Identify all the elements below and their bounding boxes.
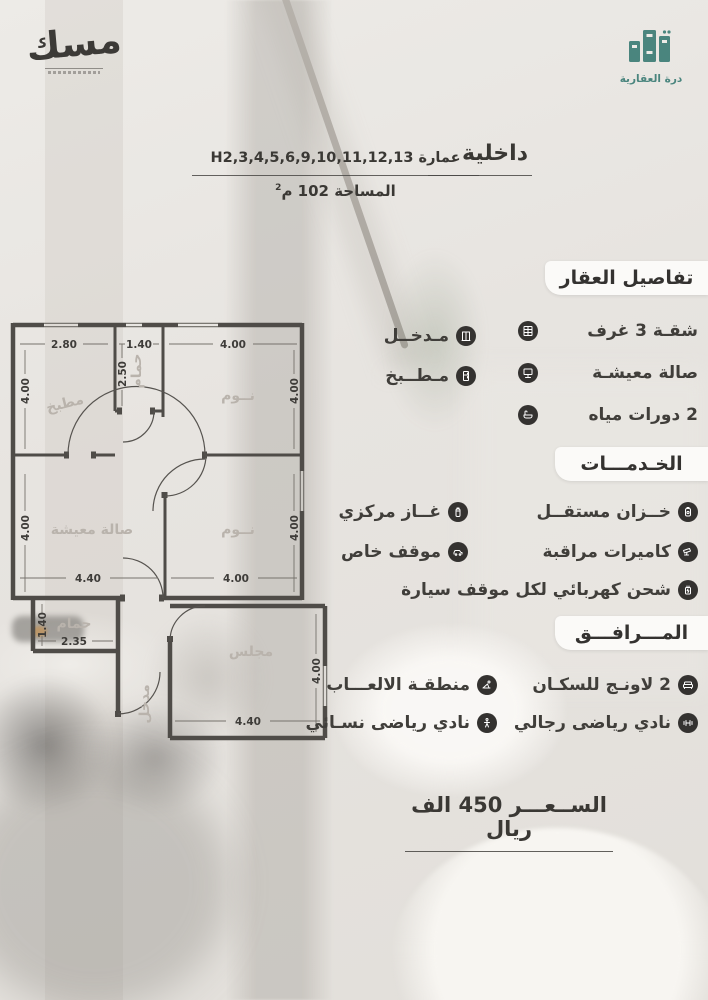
background-floor-shade [0, 760, 230, 1000]
door-icon [456, 326, 476, 346]
price-label: الســعـــر 450 الف ريال [405, 793, 613, 852]
durrah-buildings-icon [627, 26, 675, 66]
list-item: كاميرات مراقبة [520, 532, 698, 572]
misk-tagline-rule [45, 68, 103, 69]
dim-bath-top-width: 1.40 [126, 339, 152, 351]
kitchen-icon [456, 366, 476, 386]
living-room-icon [518, 363, 538, 383]
list-item: شحن كهربائي لكل موقف سيارة [368, 572, 698, 608]
room-label-entrance: مدخل [137, 684, 153, 723]
dim-living-width: 4.40 [75, 573, 101, 585]
list-item: نادي رياضى رجالي [510, 704, 698, 742]
building-number: عمارة H2,3,4,5,6,9,10,11,12,13 [192, 150, 479, 176]
dim-living-height: 4.00 [20, 515, 32, 541]
amenities-main-list: 2 لاونـج للسكـان نادي رياضى رجالي [510, 666, 698, 742]
room-label-majlis: مجلس [229, 644, 273, 660]
amenities-section-title: المـــرافـــق [555, 616, 708, 650]
list-item: مـطــبخ [351, 356, 476, 396]
dim-majlis-width: 4.40 [235, 716, 261, 728]
dim-bed-top-height: 4.00 [289, 378, 301, 404]
list-item: 2 لاونـج للسكـان [510, 666, 698, 704]
misk-tagline-mark [48, 71, 100, 74]
dim-bath-top-height: 2.50 [117, 361, 129, 387]
floorplan-windows [44, 323, 327, 706]
room-label-kitchen: مطبخ [45, 392, 86, 417]
dim-bath-bottom-height: 1.40 [37, 612, 49, 638]
details-side-list: مـدخــل مـطــبخ [351, 316, 476, 396]
list-item: شقـة 3 غرف [518, 310, 698, 352]
floorplan-door-jambs [64, 408, 207, 718]
list-item: موقف خاص [333, 532, 468, 572]
dim-bath-bottom-width: 2.35 [61, 636, 87, 648]
floorplan-inner-walls [13, 325, 302, 598]
room-label-bedroom-top: نــوم [221, 388, 255, 404]
list-item: نادي رياضى نسـائي [339, 704, 497, 742]
services-full-row: شحن كهربائي لكل موقف سيارة [368, 572, 698, 608]
floorplan-door-arcs [68, 387, 206, 715]
building-header: عمارة H2,3,4,5,6,9,10,11,12,13 المساحة 1… [192, 150, 479, 200]
playground-icon [477, 675, 497, 695]
dim-bed-mid-width: 4.00 [223, 573, 249, 585]
parking-icon [448, 542, 468, 562]
area-label: المساحة 102 م2 [192, 182, 479, 200]
room-label-bedroom-mid: نــوم [221, 522, 255, 538]
dim-majlis-height: 4.00 [311, 658, 323, 684]
apartment-icon [518, 321, 538, 341]
services-section-title: الخـدمـــات [555, 447, 708, 481]
background-round-table [390, 828, 708, 1000]
cctv-camera-icon [678, 542, 698, 562]
list-item: صالة معيشـة [518, 352, 698, 394]
room-label-bath-top: حمام [129, 354, 145, 389]
mens-gym-icon [678, 713, 698, 733]
dim-kitchen-height: 4.00 [20, 378, 32, 404]
flyer-page: مسك درة العقارية داخلية عمارة H2,3,4,5,6… [0, 0, 708, 1000]
services-side-list: غــاز مركزي موقف خاص [333, 492, 468, 572]
list-item: خــزان مستقــل [520, 492, 698, 532]
dim-bed-top-width: 4.00 [220, 339, 246, 351]
floor-plan: 2.80 1.40 4.00 4.00 2.50 4.00 4.00 4.40 … [8, 314, 332, 746]
list-item: مـدخــل [351, 316, 476, 356]
water-tank-icon [678, 502, 698, 522]
services-main-list: خــزان مستقــل كاميرات مراقبة [520, 492, 698, 572]
misk-logo: مسك [22, 24, 126, 74]
room-label-living: صالة معيشة [51, 522, 133, 538]
details-section-title: تفاصيل العقار [545, 261, 708, 295]
bathroom-icon [518, 405, 538, 425]
misk-wordmark: مسك [20, 20, 127, 70]
lounge-icon [678, 675, 698, 695]
list-item: منطقـة الالعـــاب [339, 666, 497, 704]
durrah-name: درة العقارية [610, 73, 692, 85]
dim-kitchen-width: 2.80 [51, 339, 77, 351]
room-label-bath-bottom: حمام [57, 616, 92, 632]
womens-gym-icon [477, 713, 497, 733]
list-item: 2 دورات مياه [518, 394, 698, 436]
ev-charging-icon [678, 580, 698, 600]
details-main-list: شقـة 3 غرف صالة معيشـة 2 دورات مياه [518, 310, 698, 436]
durrah-logo: درة العقارية [610, 26, 692, 85]
dim-bed-mid-height: 4.00 [289, 515, 301, 541]
amenities-side-list: منطقـة الالعـــاب نادي رياضى نسـائي [339, 666, 497, 742]
gas-icon [448, 502, 468, 522]
list-item: غــاز مركزي [333, 492, 468, 532]
